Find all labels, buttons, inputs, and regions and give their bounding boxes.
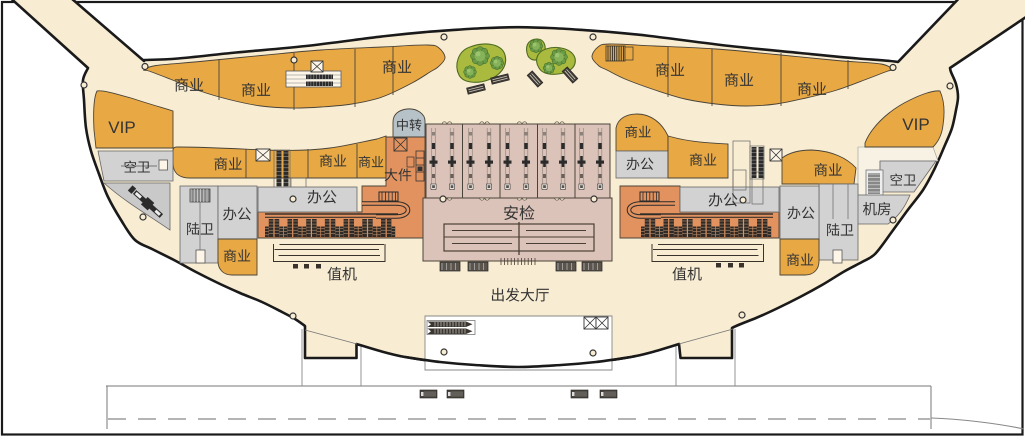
- svg-text:VIP: VIP: [902, 115, 929, 134]
- svg-text:VIP: VIP: [108, 118, 135, 137]
